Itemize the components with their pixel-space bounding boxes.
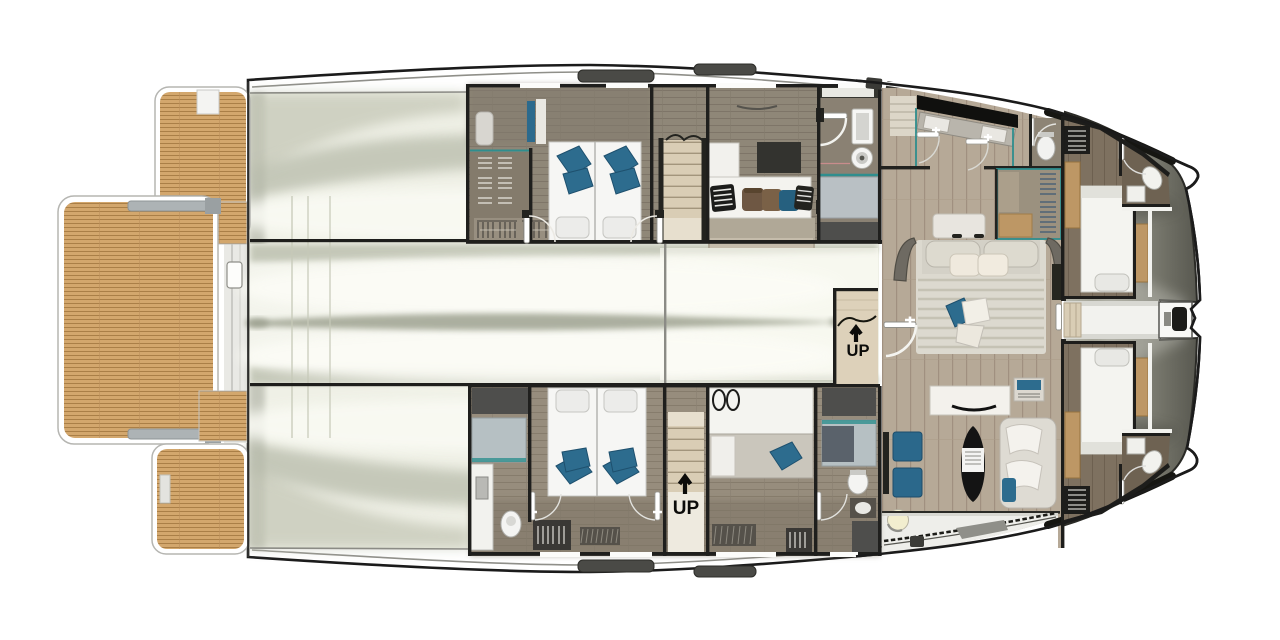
svg-text:UP: UP bbox=[847, 342, 870, 360]
svg-text:UP: UP bbox=[673, 498, 700, 519]
